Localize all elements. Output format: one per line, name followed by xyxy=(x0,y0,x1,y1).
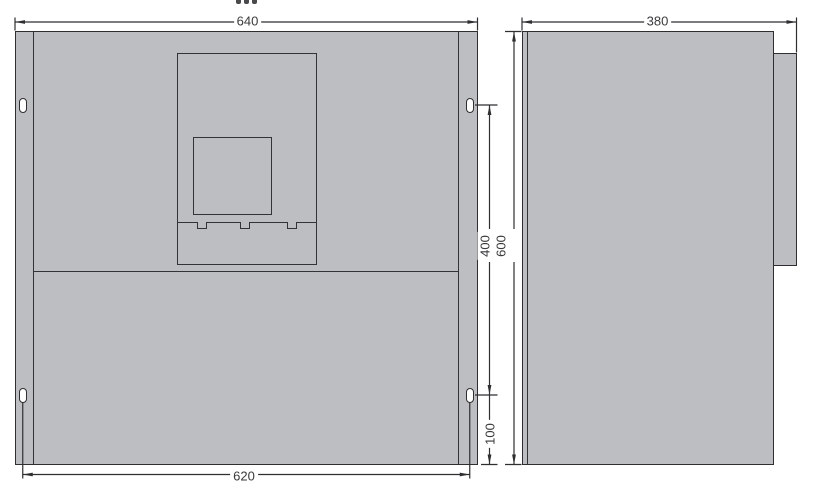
mounting-slot-top-right xyxy=(466,98,474,114)
side-front-face-line xyxy=(527,32,528,464)
dimension-overall-height: 600 xyxy=(493,232,508,260)
door-notch-line xyxy=(297,222,316,223)
mounting-slot-top-left xyxy=(19,98,27,114)
rear-flange xyxy=(773,53,798,266)
mounting-slot-bottom-right xyxy=(466,388,474,404)
side-view-panel xyxy=(522,31,774,465)
cropped-text-artifact xyxy=(236,0,241,4)
technical-drawing-canvas: 640 380 620 400 600 100 xyxy=(0,0,822,488)
mounting-slot-bottom-left xyxy=(19,388,27,404)
door-notch-line xyxy=(177,222,197,223)
dimension-slot-bottom-offset: 100 xyxy=(482,420,497,448)
vent-notch xyxy=(197,222,207,230)
door-notch-line xyxy=(207,222,242,223)
display-window xyxy=(193,137,272,215)
vent-notch xyxy=(287,222,297,230)
front-panel-divider-line xyxy=(33,271,458,272)
front-right-strip-line xyxy=(458,32,459,464)
dimension-overall-width: 640 xyxy=(234,13,262,28)
dimension-slot-spacing-horizontal: 620 xyxy=(230,469,258,484)
door-notch-line xyxy=(250,222,288,223)
vent-notch xyxy=(240,222,250,230)
dimension-slot-spacing-vertical: 400 xyxy=(478,232,493,260)
dimension-depth: 380 xyxy=(644,13,672,28)
front-left-strip-line xyxy=(33,32,34,464)
